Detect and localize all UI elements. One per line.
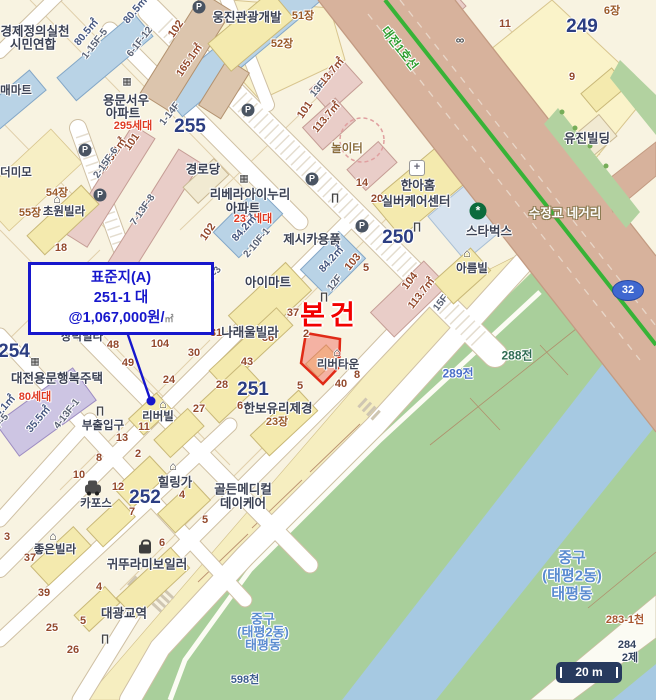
- scale-bar: 20 m: [556, 662, 622, 683]
- callout-price: @1,067,000원/㎡: [31, 308, 211, 329]
- standard-lot-callout: 표준지(A) 251-1 대 @1,067,000원/㎡: [28, 262, 214, 335]
- map-canvas[interactable]: 경제정의실천시민연합80.5㎡80.5㎡1-15F-56-1F-12102165…: [0, 0, 656, 700]
- callout-parcel: 251-1 대: [31, 288, 211, 308]
- callout-title: 표준지(A): [31, 268, 211, 288]
- price-unit: ㎡: [165, 314, 174, 324]
- map-base-art: [0, 0, 656, 700]
- standard-lot-marker: [147, 397, 156, 406]
- route-number-badge: 32: [612, 280, 644, 301]
